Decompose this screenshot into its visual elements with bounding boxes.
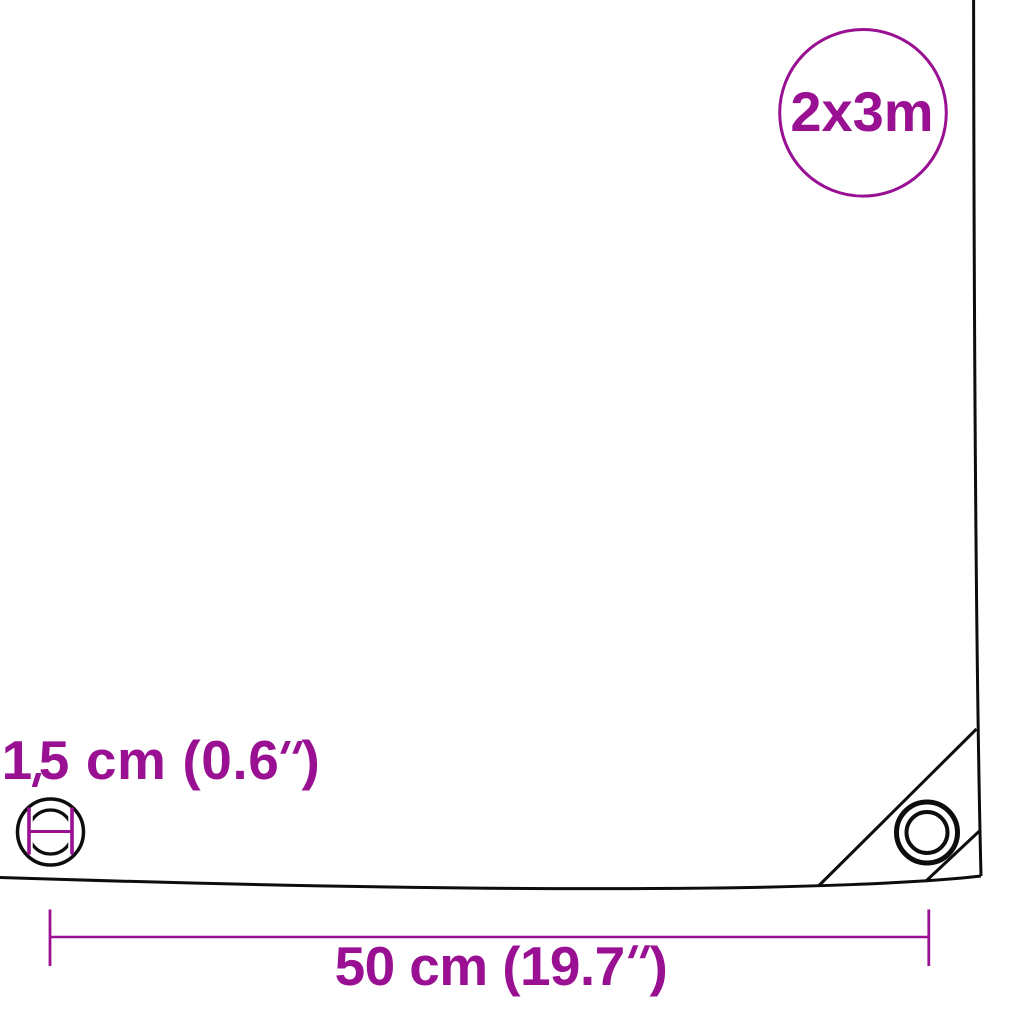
svg-text:5 cm (0.6: 5 cm (0.6	[39, 729, 280, 791]
svg-text:1: 1	[2, 729, 33, 791]
svg-text:): )	[302, 729, 320, 791]
svg-text:): )	[650, 935, 668, 997]
svg-text:2x3m: 2x3m	[790, 80, 933, 143]
svg-text:50 cm (19.7: 50 cm (19.7	[335, 935, 625, 997]
